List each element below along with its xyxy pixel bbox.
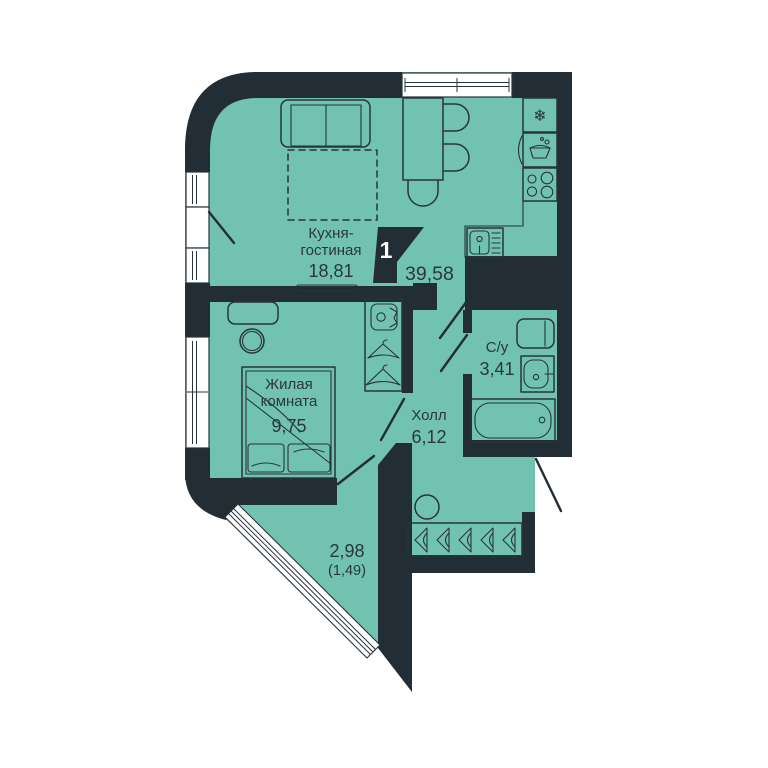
door-entrance (536, 459, 561, 511)
svg-text:2,98: 2,98 (329, 541, 364, 561)
room-label-hall: Холл 6,12 (411, 407, 446, 447)
svg-text:6,12: 6,12 (411, 427, 446, 447)
svg-text:гостиная: гостиная (301, 242, 362, 259)
snowflake-icon: ❄ (533, 106, 546, 125)
wall-living-bedroom (210, 286, 437, 302)
wall-hall-left (402, 302, 413, 393)
floor-plan-drawing: ❄ (0, 0, 768, 768)
wall-right (557, 72, 572, 457)
wall-bedroom-bottom (210, 478, 337, 505)
wall-left-mid (185, 283, 210, 337)
svg-text:Жилая: Жилая (265, 376, 312, 393)
unit-total-area: 39,58 (405, 263, 454, 285)
window-top (402, 73, 512, 97)
room-label-balcony: 2,98 (1,49) (328, 541, 366, 579)
wall-kitchen-block (465, 256, 557, 310)
svg-text:3,41: 3,41 (479, 359, 514, 379)
wall-lower-tip (378, 443, 412, 692)
svg-text:Холл: Холл (411, 407, 446, 424)
window-left-1 (186, 172, 209, 207)
window-left-opening (186, 207, 209, 248)
svg-text:(1,49): (1,49) (328, 563, 366, 579)
wall-bathroom-left-top (463, 310, 472, 333)
svg-text:комната: комната (261, 393, 318, 410)
svg-text:9,75: 9,75 (271, 416, 306, 436)
window-left-2 (186, 248, 209, 283)
svg-text:С/у: С/у (486, 339, 509, 356)
wall-entry-stub (522, 512, 535, 573)
floor-plan: ❄ (0, 0, 768, 768)
wall-entry-bottom (408, 555, 535, 573)
window-bedroom (186, 337, 209, 448)
unit-number: 1 (380, 237, 393, 263)
room-label-kitchen-living: Кухня- гостиная 18,81 (301, 225, 362, 281)
svg-text:Кухня-: Кухня- (308, 225, 353, 242)
wall-living-hall-chunk (413, 283, 437, 310)
svg-text:18,81: 18,81 (308, 261, 353, 281)
